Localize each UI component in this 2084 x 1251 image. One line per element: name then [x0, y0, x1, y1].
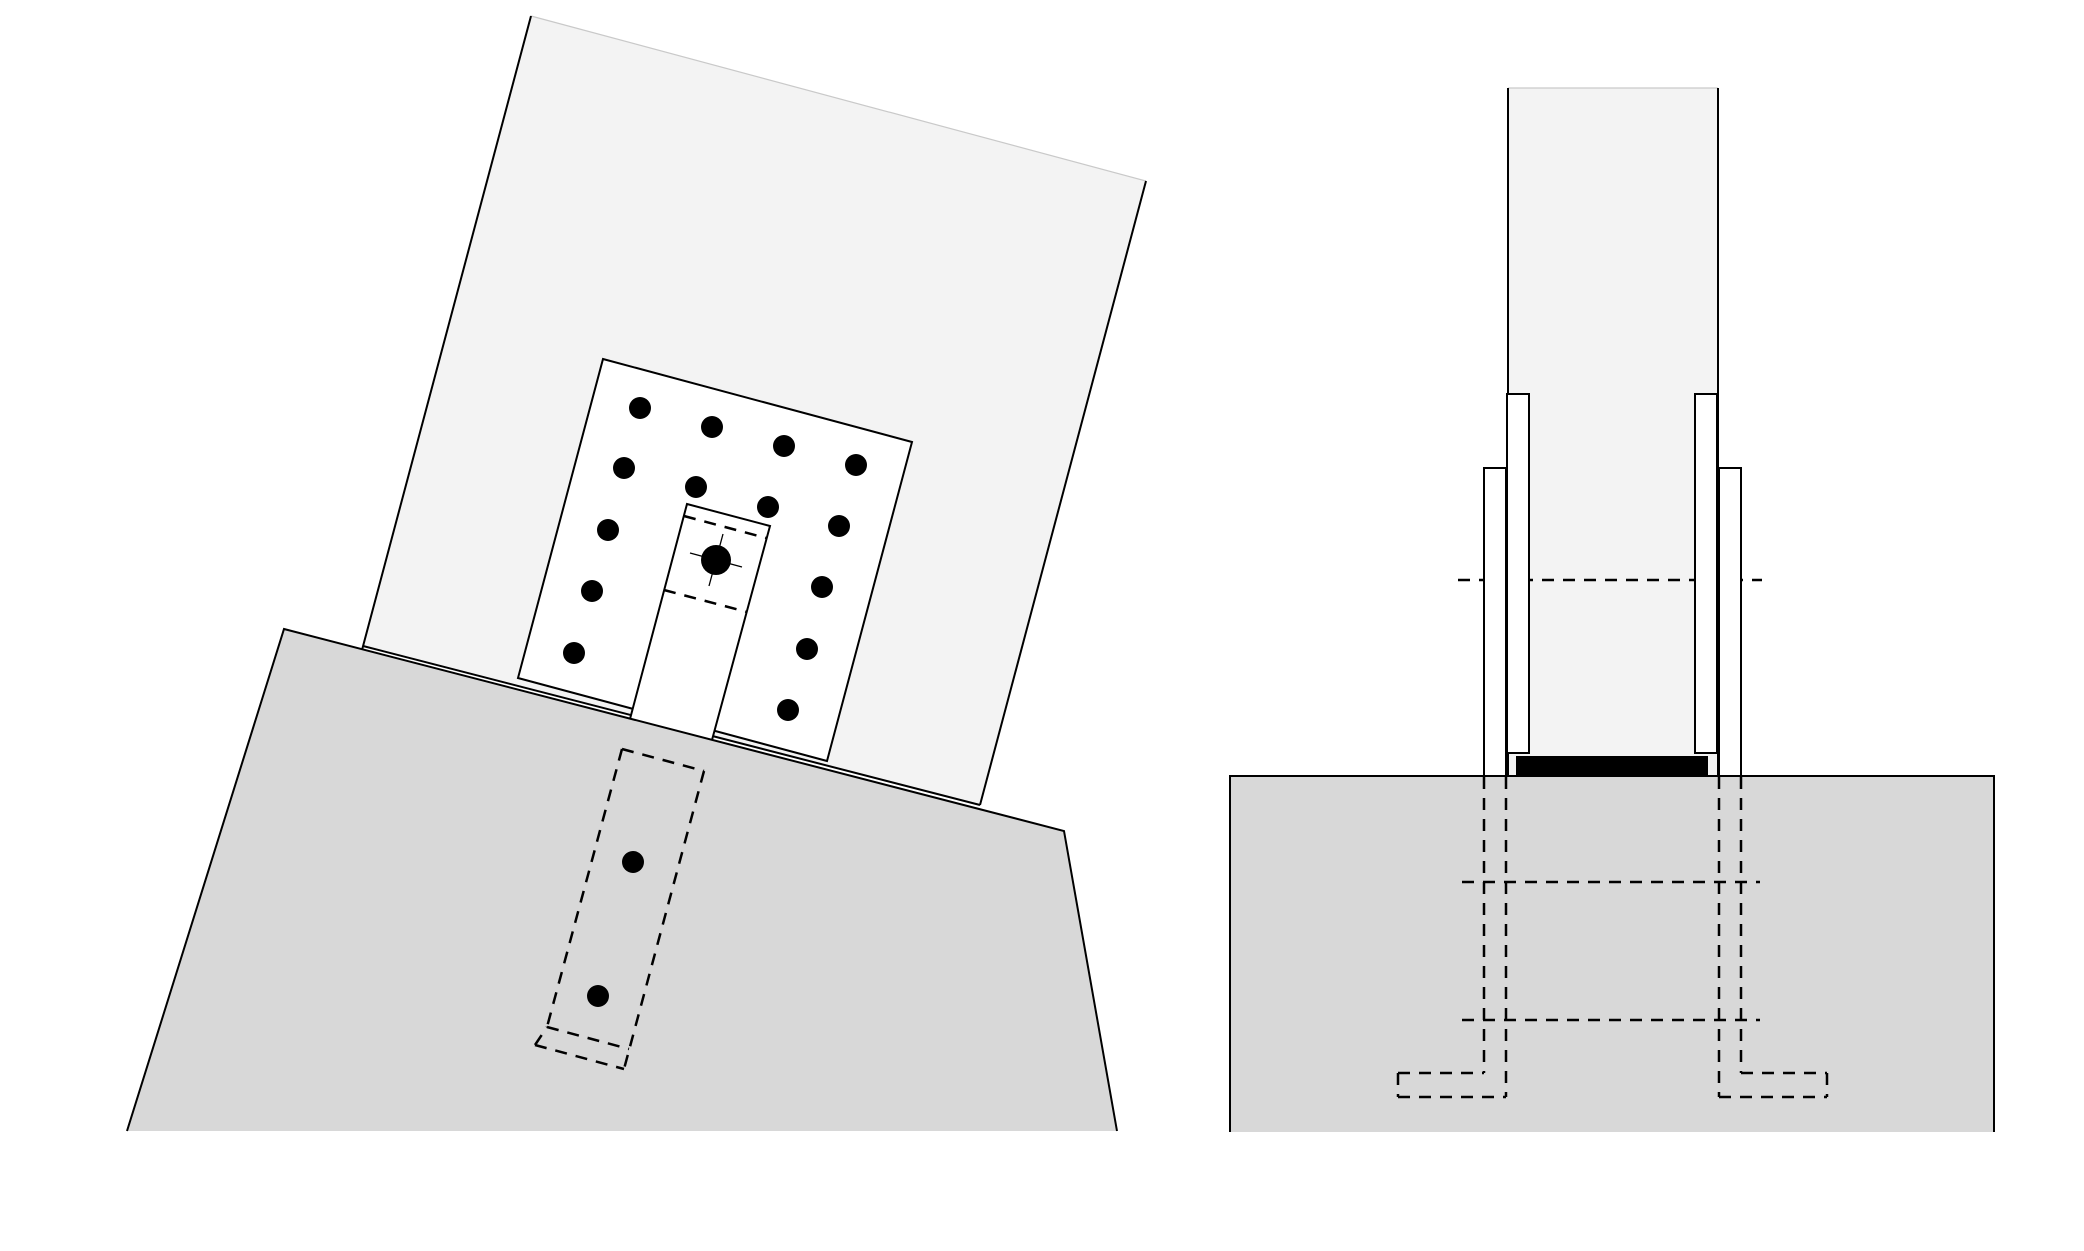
inner-side-plate-left	[1507, 394, 1529, 753]
plate-bolt-1	[629, 397, 651, 419]
plate-bolt-9	[597, 519, 619, 541]
outer-side-plate-right	[1719, 468, 1741, 777]
plate-bolt-12	[796, 638, 818, 660]
bearing-pad	[1516, 756, 1708, 776]
plate-bolt-6	[685, 476, 707, 498]
anchor-bolt-lower	[587, 985, 609, 1007]
plate-bolt-11	[581, 580, 603, 602]
inner-side-plate-right	[1695, 394, 1717, 753]
anchor-bolt-upper	[622, 851, 644, 873]
plate-bolt-3	[773, 435, 795, 457]
main-bolt-head	[701, 545, 731, 575]
column-base-front-view	[1230, 88, 1994, 1132]
plate-bolt-10	[811, 576, 833, 598]
plate-bolt-8	[828, 515, 850, 537]
column-fill	[1508, 88, 1718, 776]
plate-bolt-7	[757, 496, 779, 518]
inclined-member-elevation-view	[127, 16, 1146, 1131]
plate-bolt-5	[613, 457, 635, 479]
outer-side-plate-left	[1484, 468, 1506, 777]
plate-bolt-2	[701, 416, 723, 438]
technical-drawing-page	[0, 0, 2084, 1251]
plate-bolt-14	[777, 699, 799, 721]
connection-detail-drawing	[0, 0, 2084, 1251]
plate-bolt-4	[845, 454, 867, 476]
footing-fill	[1230, 776, 1994, 1132]
plate-bolt-13	[563, 642, 585, 664]
